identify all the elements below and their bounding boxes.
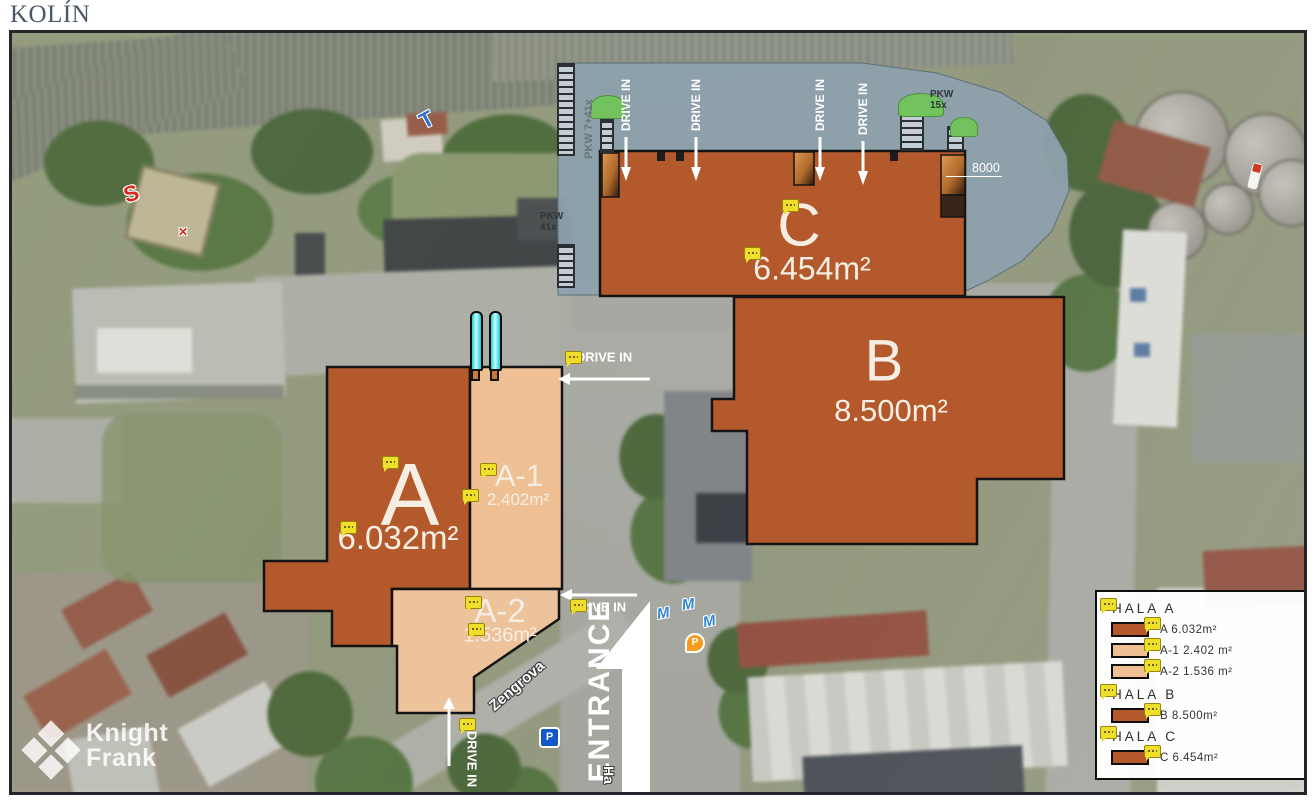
legend-row: C 6.454m²: [1111, 750, 1302, 765]
cross-marker-icon: ✕: [178, 225, 188, 239]
drive-in-label: DRIVE IN: [465, 731, 480, 787]
entrance-label: ENTRANCE: [583, 600, 617, 783]
parking-count-right: PKW 15x: [930, 89, 958, 111]
knight-frank-logo-icon: [21, 720, 80, 779]
legend-row: B 8.500m²: [1111, 708, 1302, 723]
note-tag-icon: [1144, 638, 1161, 651]
street-label-partial: Ha: [601, 766, 617, 784]
note-tag-icon: [465, 596, 482, 609]
knight-frank-watermark: Knight Frank: [26, 721, 168, 771]
legend-label: A-1 2.402 m²: [1151, 645, 1232, 657]
drive-in-label: DRIVE IN: [689, 79, 703, 131]
note-tag-icon: [1144, 659, 1161, 672]
legend-row: A-2 1.536 m²: [1111, 664, 1302, 679]
wave-pin-icon: M: [656, 604, 671, 623]
parking-pin-icon: P: [685, 633, 705, 653]
legend-section-title: HALA A: [1107, 601, 1302, 616]
wave-pin-icon: M: [701, 612, 717, 631]
legend-label: A 6.032m²: [1151, 624, 1217, 636]
note-tag-icon: [382, 456, 399, 469]
chimney-icon: [489, 311, 502, 371]
legend-row: A 6.032m²: [1111, 622, 1302, 637]
note-tag-icon: [1144, 703, 1161, 716]
drive-in-label: DRIVE IN: [856, 83, 870, 135]
page-title: KOLÍN: [10, 1, 90, 29]
note-tag-icon: [459, 718, 476, 731]
dimension-label: 8000: [946, 159, 1002, 177]
note-tag-icon: [1100, 684, 1117, 697]
note-tag-icon: [480, 463, 497, 476]
note-tag-icon: [1100, 726, 1117, 739]
legend-label: A-2 1.536 m²: [1151, 666, 1232, 678]
note-tag-icon: [782, 199, 799, 212]
legend-label: B 8.500m²: [1151, 710, 1218, 722]
note-tag-icon: [468, 623, 485, 636]
aerial-map: C 6.454m² B 8.500m² A 6.032m² A-1 2.402m…: [9, 30, 1307, 795]
legend-label: C 6.454m²: [1151, 752, 1218, 764]
parking-sign-icon: P: [539, 727, 560, 748]
note-tag-icon: [570, 599, 587, 612]
drive-in-label: DRIVE IN: [576, 350, 632, 365]
parking-count-small: PKW 41x: [540, 211, 566, 233]
note-tag-icon: [565, 351, 582, 364]
note-tag-icon: [1144, 745, 1161, 758]
note-tag-icon: [1144, 617, 1161, 630]
drive-in-label: DRIVE IN: [813, 79, 827, 131]
legend-row: A-1 2.402 m²: [1111, 643, 1302, 658]
legend: HALA A A 6.032m² A-1 2.402 m² A-2 1.536 …: [1095, 590, 1307, 780]
parking-count-left: PKW 7+41x: [583, 99, 595, 159]
wave-pin-icon: M: [681, 595, 696, 614]
note-tag-icon: [744, 247, 761, 260]
knight-frank-wordmark: Knight Frank: [86, 721, 168, 771]
legend-section-title: HALA C: [1107, 729, 1302, 744]
chimney-icon: [470, 311, 483, 371]
legend-section-title: HALA B: [1107, 687, 1302, 702]
note-tag-icon: [340, 521, 357, 534]
note-tag-icon: [1100, 598, 1117, 611]
site-plan-page: KOLÍN: [0, 0, 1316, 800]
drive-in-label: DRIVE IN: [619, 79, 633, 131]
note-tag-icon: [462, 489, 479, 502]
